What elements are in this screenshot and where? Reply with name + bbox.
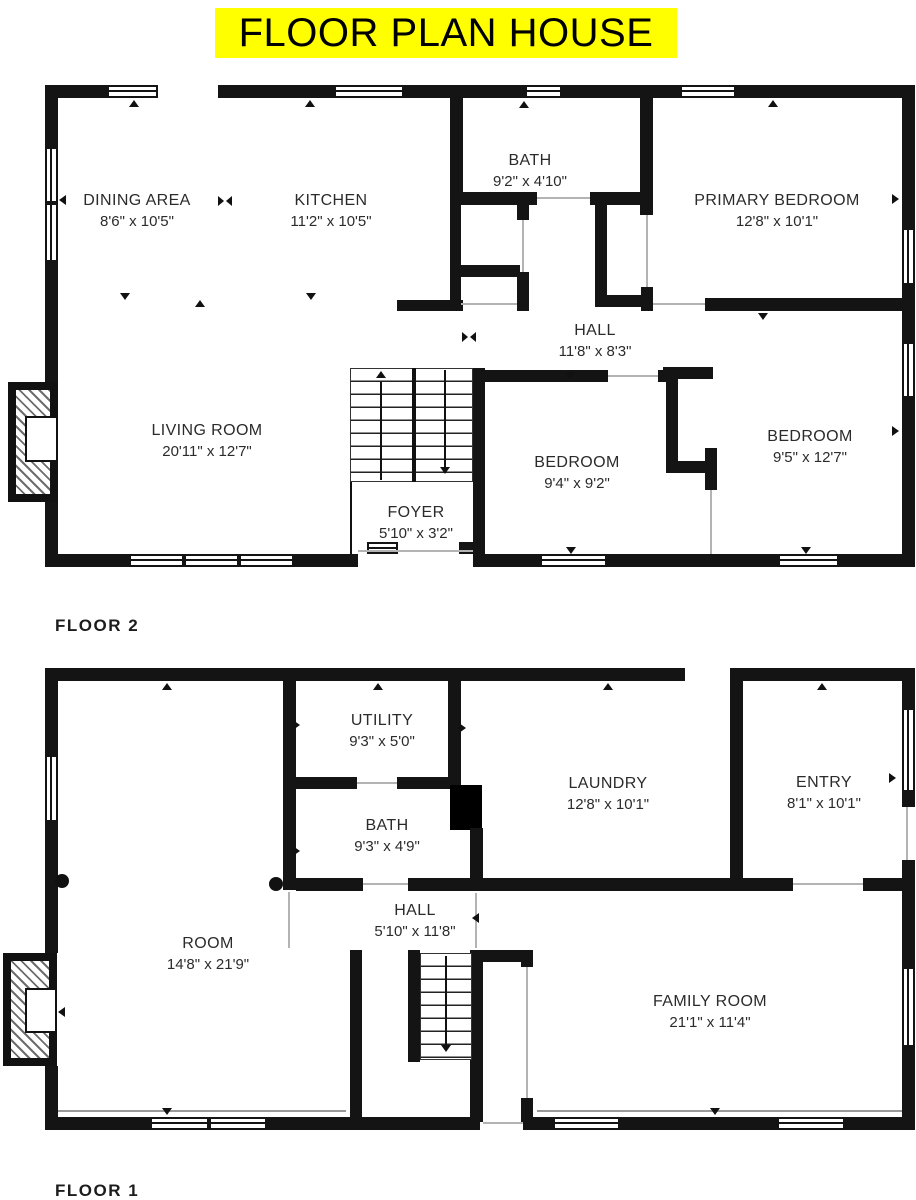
window [902, 967, 915, 1047]
door-opening-line [483, 1122, 523, 1124]
wall [267, 1117, 480, 1130]
wall [296, 878, 363, 891]
room-dims: 9'3" x 4'9" [354, 837, 420, 857]
door-opening-line [288, 892, 290, 948]
room-dims: 8'1" x 10'1" [787, 794, 861, 814]
stair-arrow [445, 956, 447, 1046]
dimension-arrow-left [58, 1007, 65, 1017]
wall [902, 860, 915, 967]
room-name: BATH [354, 816, 420, 837]
dimension-arrow-right [293, 720, 300, 730]
dimension-arrow-left [472, 913, 479, 923]
room-name: LAUNDRY [567, 774, 649, 795]
closet-edge-line [526, 967, 528, 1098]
door-hinge-dot [55, 874, 69, 888]
door-opening-line [363, 883, 408, 885]
room-name: ENTRY [787, 773, 861, 794]
wall [45, 1066, 58, 1117]
wall [45, 681, 58, 755]
room-dims: 5'10" x 11'8" [374, 922, 455, 942]
room-label-bath1: BATH 9'3" x 4'9" [354, 816, 420, 856]
floor-plan-image: FLOOR PLAN HOUSE [0, 0, 916, 1200]
dimension-arrow-right [293, 846, 300, 856]
wall [397, 777, 450, 789]
window [777, 1117, 845, 1130]
wall [408, 950, 420, 1062]
wall [45, 668, 685, 681]
dimension-arrow-right [889, 773, 896, 783]
wall [730, 668, 915, 681]
door-hinge-dot [269, 877, 283, 891]
room-dims: 14'8" x 21'9" [167, 955, 249, 975]
room-name: UTILITY [349, 711, 415, 732]
dimension-arrow-up [162, 683, 172, 690]
chimney [450, 785, 482, 830]
window [553, 1117, 620, 1130]
room-dims: 9'3" x 5'0" [349, 732, 415, 752]
window [209, 1117, 267, 1130]
wall [902, 792, 915, 807]
wall [448, 681, 461, 785]
dimension-arrow-up [817, 683, 827, 690]
dimension-arrow-up [373, 683, 383, 690]
wall [902, 681, 915, 708]
room-name: HALL [374, 901, 455, 922]
dimension-arrow-down [162, 1108, 172, 1115]
wall [45, 822, 58, 953]
door-opening-line [793, 883, 863, 885]
wall [408, 878, 470, 891]
wall [350, 950, 362, 1117]
wall [521, 1098, 533, 1122]
room-label-family-room: FAMILY ROOM 21'1" x 11'4" [653, 992, 767, 1032]
wall [902, 1047, 915, 1117]
room-label-laundry: LAUNDRY 12'8" x 10'1" [567, 774, 649, 814]
wall [620, 1117, 777, 1130]
wall [480, 878, 793, 891]
window [150, 1117, 209, 1130]
wall [730, 681, 743, 878]
window [45, 755, 58, 822]
floor1-label: FLOOR 1 [55, 1181, 139, 1200]
inner-edge-line [58, 1110, 346, 1112]
room-label-room: ROOM 14'8" x 21'9" [167, 934, 249, 974]
fireplace-insert [25, 988, 57, 1033]
wall [863, 878, 902, 891]
room-name: ROOM [167, 934, 249, 955]
dimension-arrow-down [710, 1108, 720, 1115]
room-name: FAMILY ROOM [653, 992, 767, 1013]
wall [45, 1117, 150, 1130]
stair-arrow-down [441, 1045, 451, 1052]
wall [845, 1117, 915, 1130]
window [902, 708, 915, 792]
room-label-utility: UTILITY 9'3" x 5'0" [349, 711, 415, 751]
floor1-plan: UTILITY 9'3" x 5'0" BATH 9'3" x 4'9" LAU… [0, 0, 916, 1200]
room-label-entry: ENTRY 8'1" x 10'1" [787, 773, 861, 813]
door-opening-line [906, 807, 908, 860]
wall [283, 777, 357, 789]
dimension-arrow-right [459, 723, 466, 733]
door-opening-line [357, 782, 397, 784]
room-dims: 12'8" x 10'1" [567, 795, 649, 815]
dimension-arrow-up [603, 683, 613, 690]
room-label-hall1: HALL 5'10" x 11'8" [374, 901, 455, 941]
room-dims: 21'1" x 11'4" [653, 1013, 767, 1033]
wall [521, 950, 533, 967]
